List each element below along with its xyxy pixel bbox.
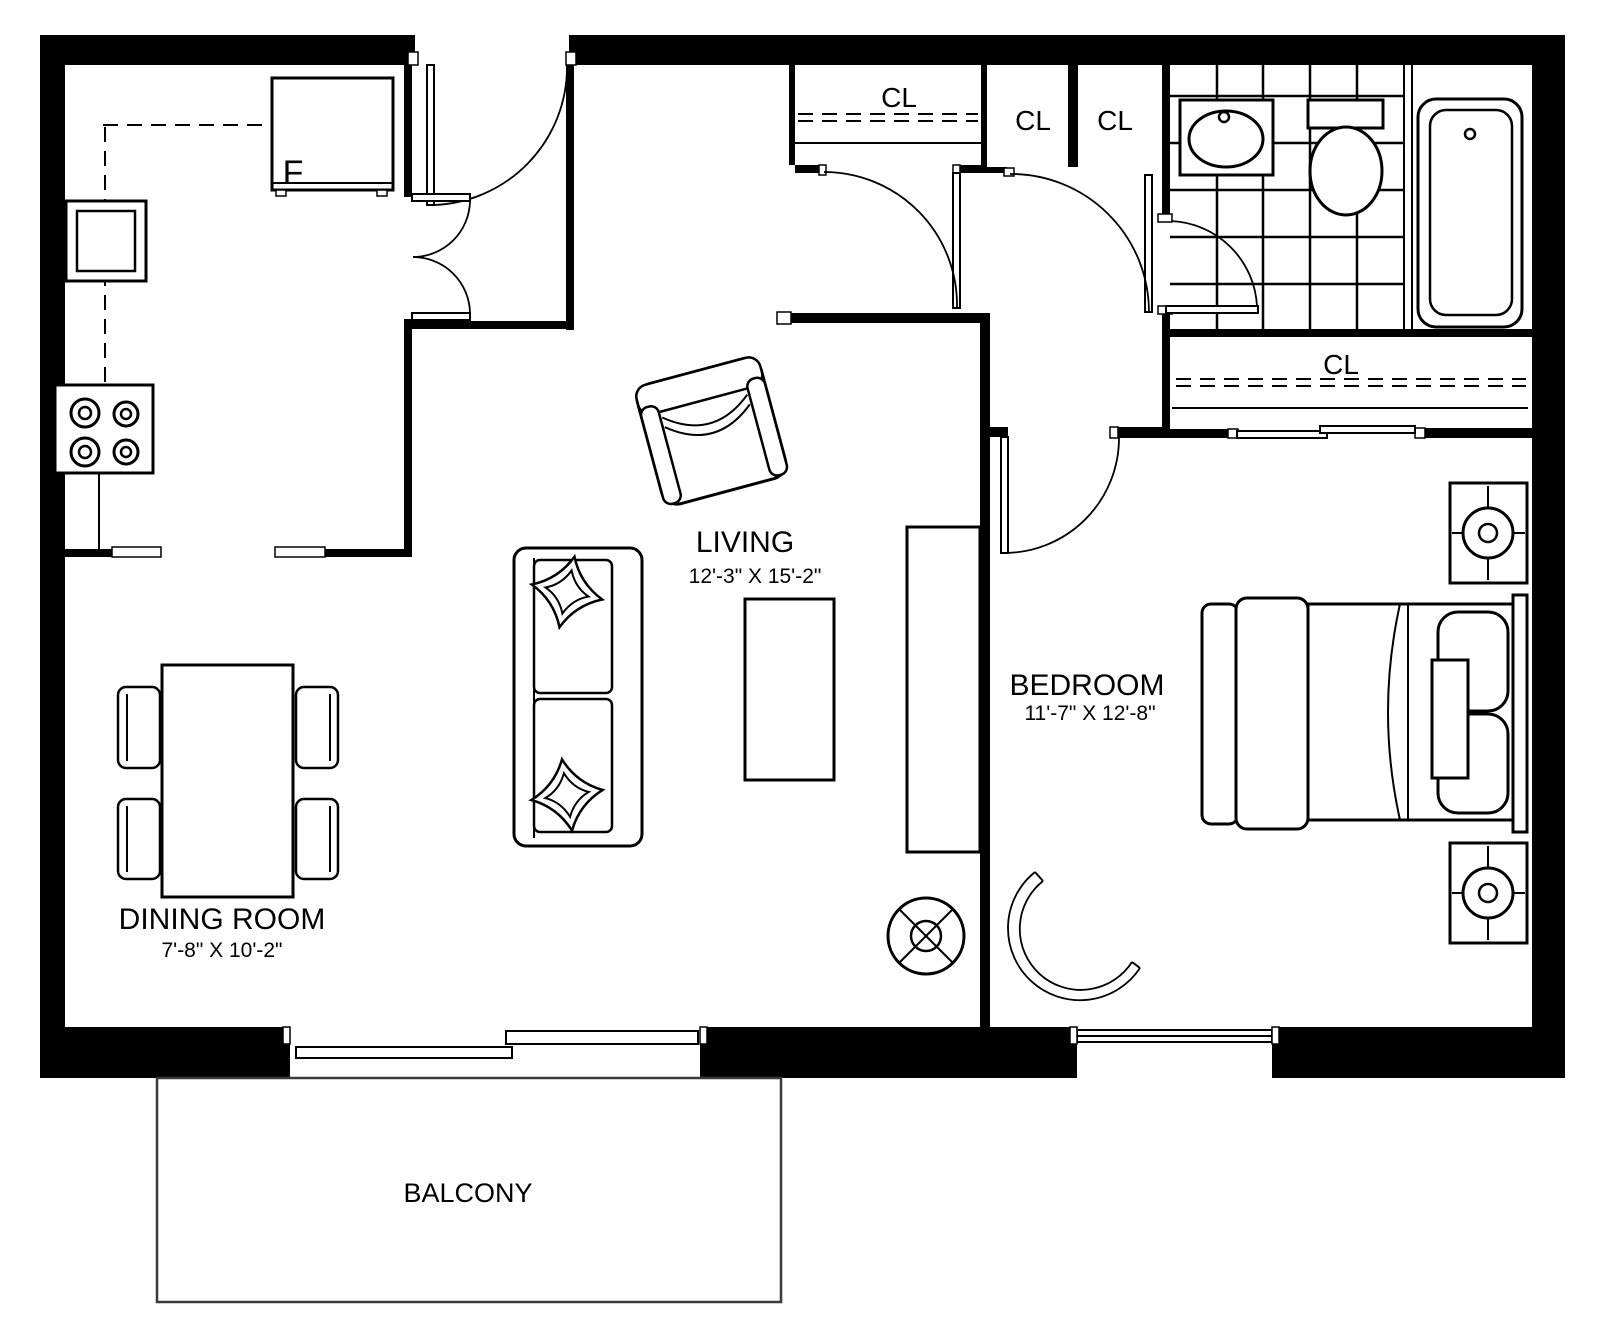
wall-bottom-center (700, 1027, 1077, 1078)
wall-right (1532, 35, 1565, 1078)
bedroom-door-swing (1004, 438, 1119, 553)
bathroom-door-leaf (1166, 306, 1258, 313)
vestibule-wall-left-upper (404, 65, 412, 197)
closet-t-jamb (967, 167, 1007, 173)
bedroom: BEDROOM 11'-7" X 12'-8" (1008, 483, 1527, 1000)
ceiling-light-icon (888, 898, 964, 974)
entry (408, 52, 576, 320)
kitchen-opening-jamb-left (112, 547, 161, 557)
coffee-table (745, 599, 834, 780)
vestibule-double-door-leaf-lower (412, 313, 470, 320)
dining-table (162, 665, 293, 897)
toilet (1308, 100, 1383, 215)
window-jamb-1 (283, 1027, 290, 1044)
corridor-door-swing (1010, 174, 1149, 311)
dining-chair-1 (118, 687, 160, 768)
vestibule-double-door-swing-lower (413, 257, 470, 313)
wall-left (40, 35, 65, 1078)
window-jamb-3 (1070, 1027, 1077, 1044)
bedroom-dimensions: 11'-7" X 12'-8" (1024, 702, 1155, 725)
bathroom-wall-bottom (1170, 329, 1532, 337)
closet-slider-jamb-right (1415, 428, 1425, 438)
bedroom-label: BEDROOM (1009, 669, 1164, 702)
kitchen-wall-bottom-right (325, 549, 412, 557)
hall-closet-door-swing (824, 172, 957, 307)
living-room: LIVING 12'-3" X 15'-2" (514, 355, 980, 974)
bedroom-closet-label: CL (1323, 349, 1359, 380)
wall-bottom-right (1272, 1027, 1565, 1078)
bed-foot-blanket-outer (1202, 604, 1238, 824)
media-cabinet (907, 527, 980, 852)
bedroom-chair (1008, 872, 1140, 1000)
bed-headboard (1513, 595, 1527, 832)
bed (1202, 595, 1527, 832)
entry-door-leaf (427, 65, 434, 205)
dining-chair-4 (296, 799, 338, 879)
wall-bottom-left (40, 1027, 290, 1078)
dining-room-label: DINING ROOM (119, 903, 326, 936)
sofa (514, 548, 642, 846)
wall-top-left (40, 35, 415, 65)
fridge-foot-right (377, 190, 387, 196)
bed-foot-blanket-inner (1236, 598, 1308, 829)
living-slider-panel-right (506, 1031, 698, 1044)
vestibule-wall-bottom (412, 321, 574, 329)
dining-room-dimensions: 7'-8" X 10'-2" (162, 939, 283, 962)
bed-bolster (1432, 660, 1468, 778)
floor-plan-page: F CL CL (0, 0, 1607, 1335)
vestibule-wall-right (566, 65, 574, 330)
hall-closet-label: CL (881, 82, 917, 113)
bedroom-door-jamb (1110, 427, 1118, 438)
bedroom-closet-wall-bottom-left (1162, 429, 1228, 438)
fridge-label: F (283, 154, 304, 192)
kitchen-sink (66, 201, 146, 281)
hall-wall-jamb (777, 312, 791, 324)
stove (55, 385, 153, 473)
living-slider-panel-left (296, 1047, 512, 1058)
vanity-sink (1180, 100, 1273, 175)
dining-chair-2 (118, 799, 160, 879)
bathroom (1158, 65, 1522, 329)
bedroom-closet: CL (1172, 349, 1528, 438)
vestibule-double-door-swing-upper (413, 201, 470, 257)
vestibule-double-door-leaf-upper (412, 194, 470, 201)
kitchen-wall-right-lower (404, 319, 412, 557)
entry-jamb-left (408, 52, 418, 65)
corridor-door-leaf (1145, 175, 1152, 312)
living-room-dimensions: 12'-3" X 15'-2" (689, 565, 822, 588)
entry-jamb-right (566, 52, 576, 65)
closet-2-label: CL (1015, 105, 1051, 136)
wall-top-right (569, 35, 1565, 65)
hall-closet: CL (795, 82, 981, 308)
kitchen: F (55, 78, 393, 557)
bathroom-wall-left-lower (1162, 310, 1170, 438)
hall-closet-wall-left (789, 65, 795, 165)
hall-wall (790, 313, 990, 323)
living-room-label: LIVING (696, 526, 794, 559)
nightstand-2 (1450, 843, 1527, 943)
armchair (634, 355, 790, 508)
bedroom-door (1001, 427, 1119, 553)
bedroom-door-leaf (1001, 437, 1008, 553)
dining-chair-3 (296, 687, 338, 768)
hall-closet-jamb-left (819, 165, 826, 175)
bedroom-door-stub (990, 427, 1008, 437)
bathroom-door-swing (1171, 221, 1257, 306)
bedroom-closet-wall-bottom-right (1425, 428, 1532, 438)
bathtub (1418, 99, 1522, 327)
window-jamb-2 (700, 1027, 707, 1044)
closet-slider-panel-right (1320, 426, 1415, 433)
floor-plan-drawing: F CL CL (0, 0, 1607, 1335)
closet-3-label: CL (1097, 105, 1133, 136)
kitchen-opening-jamb-right (275, 547, 325, 557)
nightstand-1 (1450, 483, 1527, 583)
kitchen-wall-bottom-left (65, 549, 112, 557)
hall-closet-wall-right (981, 65, 987, 165)
hall-closet-foot-left (795, 165, 820, 173)
entry-door-swing (434, 68, 567, 205)
bathroom-door-jamb-top (1158, 214, 1172, 222)
closet-divider-wall (1068, 65, 1078, 167)
closet-slider-panel-left (1237, 431, 1327, 438)
window-jamb-4 (1272, 1027, 1279, 1044)
dining-room: DINING ROOM 7'-8" X 10'-2" (118, 665, 338, 962)
balcony-label: BALCONY (403, 1178, 532, 1208)
bathroom-wall-left-upper (1162, 65, 1170, 222)
